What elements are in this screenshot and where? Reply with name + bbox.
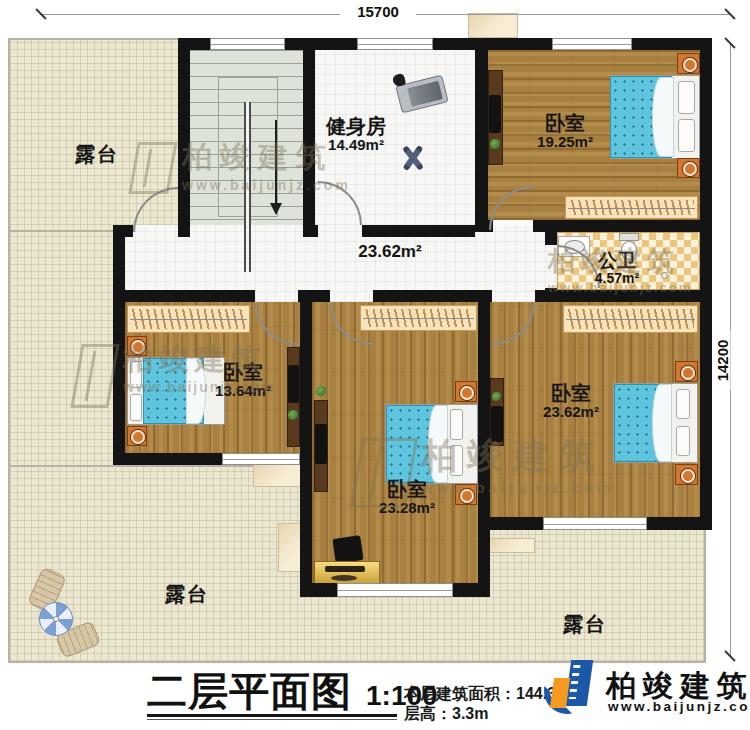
toilet bbox=[619, 233, 639, 241]
wall-segment bbox=[362, 225, 475, 237]
nightstand bbox=[675, 361, 698, 382]
wall-segment bbox=[300, 290, 312, 597]
computer-monitor-icon bbox=[491, 406, 503, 442]
tv-cabinet bbox=[314, 561, 380, 584]
wall-segment bbox=[647, 517, 712, 530]
wall-segment bbox=[453, 583, 490, 597]
nightstand bbox=[677, 53, 700, 74]
company-logo-icon bbox=[544, 660, 600, 718]
treadmill-belt bbox=[407, 81, 443, 107]
room-name: 卧室 bbox=[362, 478, 452, 500]
wall-segment bbox=[303, 225, 318, 237]
bathroom-label: 公卫 4.57m² bbox=[572, 250, 662, 287]
wall-segment bbox=[700, 38, 712, 530]
computer-monitor-icon bbox=[315, 424, 327, 464]
computer-monitor-icon bbox=[489, 95, 501, 133]
floor-plan-canvas: 露台 露台 露台 健身房 14.49m² 卧室 19.25m² 23.62m² … bbox=[0, 0, 750, 730]
bedroom-top-right-label: 卧室 19.25m² bbox=[520, 112, 610, 151]
wall-segment bbox=[285, 38, 357, 50]
title-underline bbox=[147, 714, 397, 717]
gym-label: 健身房 14.49m² bbox=[311, 115, 401, 154]
window bbox=[543, 517, 647, 530]
pillow bbox=[678, 119, 695, 152]
title-underline-thin bbox=[147, 719, 397, 720]
stair-arrow-icon bbox=[270, 203, 282, 215]
canopy-pier bbox=[253, 463, 303, 487]
wall-segment bbox=[300, 583, 337, 597]
canopy-pier bbox=[488, 538, 535, 553]
wall-segment bbox=[545, 223, 557, 245]
dimension-width-label: 15700 bbox=[340, 3, 416, 20]
pillow bbox=[130, 394, 142, 421]
bedroom-middle-label: 卧室 23.28m² bbox=[362, 478, 452, 517]
room-area: 23.28m² bbox=[362, 500, 452, 517]
wardrobe bbox=[360, 305, 477, 331]
cabinet-decor bbox=[331, 575, 357, 581]
room-area: 23.62m² bbox=[345, 242, 435, 261]
page-title: 二层平面图 bbox=[147, 664, 352, 719]
wall-segment bbox=[373, 290, 492, 302]
room-area: 14.49m² bbox=[311, 137, 401, 154]
window bbox=[337, 583, 453, 597]
bed-blanket-fold bbox=[428, 405, 448, 483]
wall-segment bbox=[113, 290, 255, 302]
window bbox=[552, 38, 632, 50]
umbrella-center bbox=[53, 616, 59, 622]
stairs bbox=[190, 50, 303, 225]
nightstand bbox=[127, 336, 147, 356]
room-name: 卧室 bbox=[526, 382, 616, 404]
terrace-top-left-label: 露台 bbox=[75, 141, 119, 168]
stair-rail bbox=[244, 102, 251, 272]
pillow bbox=[676, 389, 690, 419]
cabinet-decor bbox=[325, 566, 365, 572]
pillow bbox=[130, 361, 142, 388]
room-area: 13.64m² bbox=[198, 383, 288, 400]
window bbox=[210, 38, 285, 50]
room-area: 23.62m² bbox=[526, 404, 616, 421]
wall-segment bbox=[433, 38, 552, 50]
floor-height-text: 层高：3.3m bbox=[404, 704, 488, 725]
room-area: 4.57m² bbox=[572, 271, 662, 287]
wall-segment bbox=[113, 453, 222, 465]
room-name: 健身房 bbox=[311, 115, 401, 137]
terrace-bottom-right-label: 露台 bbox=[563, 611, 607, 638]
wall-segment bbox=[178, 38, 190, 237]
terrace-bottom-left-label: 露台 bbox=[165, 581, 209, 608]
pillow bbox=[450, 409, 463, 440]
room-name: 公卫 bbox=[572, 250, 662, 271]
room-name: 卧室 bbox=[520, 112, 610, 134]
wardrobe bbox=[563, 305, 698, 333]
stair-direction-line bbox=[275, 120, 277, 205]
nightstand bbox=[455, 381, 477, 402]
floor-drain-icon bbox=[661, 272, 668, 279]
pillow bbox=[450, 445, 463, 476]
dumbbells-icon bbox=[396, 142, 432, 174]
wall-segment bbox=[535, 290, 712, 302]
tv-icon bbox=[332, 535, 363, 564]
hallway-label: 23.62m² bbox=[345, 242, 435, 261]
room-area: 19.25m² bbox=[520, 134, 610, 151]
computer-monitor-icon bbox=[288, 365, 299, 403]
wall-segment bbox=[478, 290, 490, 597]
window bbox=[222, 453, 300, 465]
plan-title-row: 二层平面图 1:100 bbox=[147, 664, 438, 719]
wardrobe bbox=[127, 305, 250, 333]
dimension-height-label: 14200 bbox=[714, 331, 731, 391]
wardrobe bbox=[565, 196, 698, 219]
pillow bbox=[676, 426, 690, 456]
room-name: 卧室 bbox=[198, 361, 288, 383]
terrace-left-floor bbox=[8, 230, 115, 470]
pillow bbox=[678, 81, 695, 114]
nightstand bbox=[675, 464, 698, 485]
nightstand bbox=[455, 484, 477, 505]
nightstand bbox=[127, 426, 147, 446]
canopy-pier bbox=[468, 13, 518, 38]
nightstand bbox=[677, 158, 700, 178]
window bbox=[357, 38, 433, 50]
wall-segment bbox=[475, 38, 488, 232]
logo-windows bbox=[569, 665, 581, 699]
bed-blanket-fold bbox=[652, 384, 672, 462]
wall-segment bbox=[113, 302, 125, 465]
wall-segment bbox=[533, 220, 712, 232]
wall-segment bbox=[478, 517, 543, 530]
company-website: www.baijunjz.com bbox=[608, 699, 750, 714]
bedroom-left-label: 卧室 13.64m² bbox=[198, 361, 288, 400]
bedroom-right-label: 卧室 23.62m² bbox=[526, 382, 616, 421]
bed-blanket-fold bbox=[652, 77, 674, 157]
